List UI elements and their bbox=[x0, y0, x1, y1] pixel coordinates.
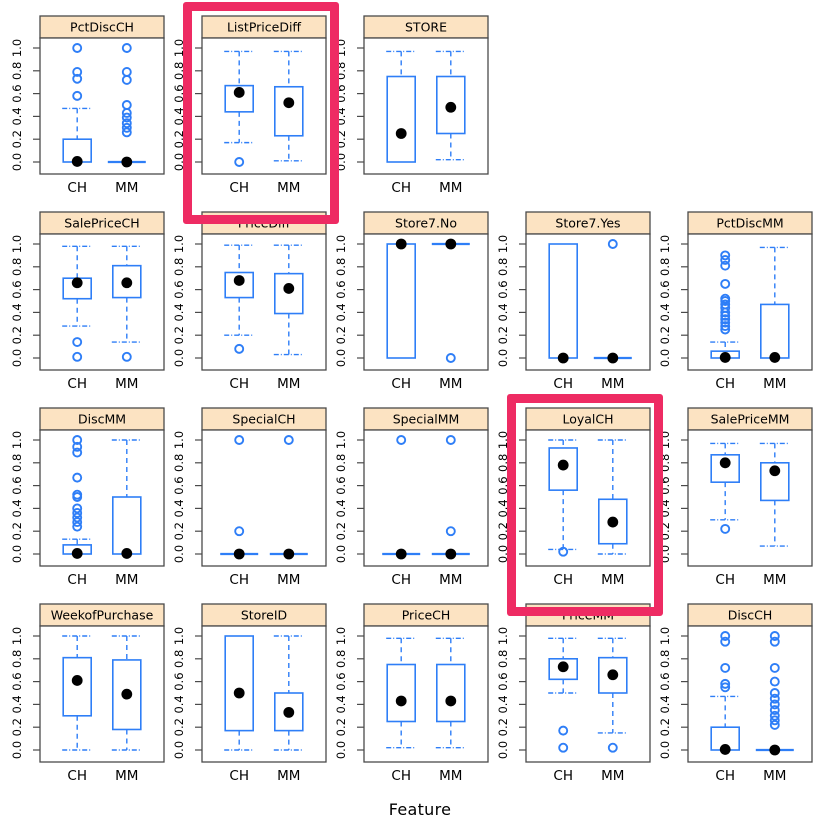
mean-dot bbox=[72, 548, 83, 559]
panel-DiscCH: DiscCH0.00.20.40.60.81.0CHMM bbox=[654, 600, 816, 796]
plot-area bbox=[526, 626, 650, 762]
panel-ListPriceDiff: ListPriceDiff0.00.20.40.60.81.0CHMM bbox=[168, 12, 330, 208]
panel-STORE: STORE0.00.20.40.60.81.0CHMM bbox=[330, 12, 492, 208]
y-tick-label: 0.4 bbox=[10, 107, 24, 125]
y-tick-label: 0.2 bbox=[496, 718, 510, 736]
x-tick-label: MM bbox=[439, 572, 462, 588]
x-tick-label: CH bbox=[715, 572, 735, 588]
y-tick-label: 0.8 bbox=[334, 650, 348, 668]
mean-dot bbox=[234, 549, 245, 560]
y-tick-label: 0.0 bbox=[658, 349, 672, 367]
x-tick-label: CH bbox=[391, 376, 411, 392]
y-tick-label: 0.6 bbox=[496, 280, 510, 298]
x-tick-label: CH bbox=[229, 572, 249, 588]
panel-PriceDiff: PriceDiff0.00.20.40.60.81.0CHMM bbox=[168, 208, 330, 404]
panel-title: ListPriceDiff bbox=[227, 20, 301, 35]
mean-dot bbox=[121, 157, 132, 168]
plot-area bbox=[364, 626, 488, 762]
mean-dot bbox=[445, 549, 456, 560]
x-tick-label: CH bbox=[553, 768, 573, 784]
y-tick-label: 0.8 bbox=[172, 650, 186, 668]
y-tick-label: 0.0 bbox=[172, 741, 186, 759]
y-tick-label: 0.6 bbox=[172, 672, 186, 690]
y-tick-label: 0.0 bbox=[334, 741, 348, 759]
panel-canvas: STORE0.00.20.40.60.81.0CHMM bbox=[330, 12, 492, 208]
y-tick-label: 1.0 bbox=[334, 431, 348, 449]
y-tick-label: 0.4 bbox=[10, 303, 24, 321]
y-tick-label: 0.4 bbox=[172, 107, 186, 125]
x-tick-label: MM bbox=[601, 572, 624, 588]
panel-PriceCH: PriceCH0.00.20.40.60.81.0CHMM bbox=[330, 600, 492, 796]
x-tick-label: CH bbox=[391, 180, 411, 196]
plot-area bbox=[40, 626, 164, 762]
panel-title: DiscCH bbox=[728, 608, 773, 623]
mean-dot bbox=[72, 675, 83, 686]
y-tick-label: 0.6 bbox=[334, 672, 348, 690]
y-tick-label: 0.8 bbox=[658, 650, 672, 668]
panel-WeekofPurchase: WeekofPurchase0.00.20.40.60.81.0CHMM bbox=[6, 600, 168, 796]
panel-Store7.No: Store7.No0.00.20.40.60.81.0CHMM bbox=[330, 208, 492, 404]
y-tick-label: 0.8 bbox=[172, 258, 186, 276]
panel-PctDiscMM: PctDiscMM0.00.20.40.60.81.0CHMM bbox=[654, 208, 816, 404]
y-tick-label: 0.0 bbox=[10, 545, 24, 563]
x-tick-label: CH bbox=[715, 376, 735, 392]
boxplot-figure: PctDiscCH0.00.20.40.60.81.0CHMMListPrice… bbox=[0, 0, 840, 840]
y-tick-label: 0.2 bbox=[172, 326, 186, 344]
y-tick-label: 0.2 bbox=[172, 718, 186, 736]
mean-dot bbox=[396, 696, 407, 707]
y-tick-label: 1.0 bbox=[10, 39, 24, 57]
y-tick-label: 0.6 bbox=[496, 672, 510, 690]
y-tick-label: 1.0 bbox=[10, 235, 24, 253]
panel-canvas: LoyalCH0.00.20.40.60.81.0CHMM bbox=[492, 404, 654, 600]
x-tick-label: CH bbox=[67, 768, 87, 784]
y-tick-label: 0.2 bbox=[658, 326, 672, 344]
x-tick-label: MM bbox=[277, 376, 300, 392]
y-tick-label: 0.8 bbox=[172, 62, 186, 80]
x-tick-label: CH bbox=[391, 572, 411, 588]
x-axis-title: Feature bbox=[0, 800, 840, 819]
plot-area bbox=[688, 430, 812, 566]
y-tick-label: 0.0 bbox=[334, 349, 348, 367]
y-tick-label: 0.6 bbox=[334, 476, 348, 494]
panel-title: PctDiscCH bbox=[70, 20, 134, 35]
panel-title: PriceMM bbox=[562, 608, 614, 623]
y-tick-label: 1.0 bbox=[334, 235, 348, 253]
mean-dot bbox=[396, 549, 407, 560]
mean-dot bbox=[396, 128, 407, 139]
y-tick-label: 0.4 bbox=[10, 695, 24, 713]
x-tick-label: MM bbox=[439, 768, 462, 784]
y-tick-label: 0.4 bbox=[334, 303, 348, 321]
y-tick-label: 0.6 bbox=[10, 84, 24, 102]
y-tick-label: 1.0 bbox=[10, 431, 24, 449]
panel-title: PctDiscMM bbox=[716, 216, 783, 231]
mean-dot bbox=[72, 156, 83, 167]
mean-dot bbox=[121, 548, 132, 559]
panel-title: Store7.Yes bbox=[555, 216, 620, 231]
y-tick-label: 1.0 bbox=[334, 627, 348, 645]
y-tick-label: 0.4 bbox=[658, 303, 672, 321]
plot-area bbox=[364, 234, 488, 370]
plot-area bbox=[364, 430, 488, 566]
plot-area bbox=[364, 38, 488, 174]
panel-title: Store7.No bbox=[395, 216, 457, 231]
mean-dot bbox=[607, 517, 618, 528]
plot-area bbox=[40, 430, 164, 566]
y-tick-label: 0.8 bbox=[496, 454, 510, 472]
y-tick-label: 0.2 bbox=[10, 130, 24, 148]
y-tick-label: 1.0 bbox=[496, 235, 510, 253]
plot-area bbox=[202, 234, 326, 370]
mean-dot bbox=[769, 352, 780, 363]
plot-area bbox=[202, 430, 326, 566]
panel-canvas: SalePriceCH0.00.20.40.60.81.0CHMM bbox=[6, 208, 168, 404]
x-tick-label: MM bbox=[601, 376, 624, 392]
y-tick-label: 0.4 bbox=[172, 499, 186, 517]
panel-canvas: ListPriceDiff0.00.20.40.60.81.0CHMM bbox=[168, 12, 330, 208]
boxplot-grid: PctDiscCH0.00.20.40.60.81.0CHMMListPrice… bbox=[6, 12, 816, 796]
y-tick-label: 0.2 bbox=[10, 718, 24, 736]
y-tick-label: 1.0 bbox=[658, 431, 672, 449]
y-tick-label: 0.2 bbox=[496, 522, 510, 540]
y-tick-label: 0.8 bbox=[172, 454, 186, 472]
y-tick-label: 0.6 bbox=[334, 280, 348, 298]
y-tick-label: 0.2 bbox=[334, 130, 348, 148]
mean-dot bbox=[121, 689, 132, 700]
x-tick-label: MM bbox=[277, 572, 300, 588]
y-tick-label: 0.8 bbox=[10, 650, 24, 668]
y-tick-label: 0.0 bbox=[172, 545, 186, 563]
y-tick-label: 0.6 bbox=[172, 476, 186, 494]
x-tick-label: CH bbox=[553, 572, 573, 588]
y-tick-label: 0.8 bbox=[334, 62, 348, 80]
panel-title: SalePriceMM bbox=[711, 412, 790, 427]
x-tick-label: CH bbox=[229, 376, 249, 392]
y-tick-label: 0.0 bbox=[10, 741, 24, 759]
y-tick-label: 1.0 bbox=[172, 431, 186, 449]
y-tick-label: 0.0 bbox=[496, 349, 510, 367]
panel-title: StoreID bbox=[241, 608, 287, 623]
x-tick-label: MM bbox=[115, 180, 138, 196]
mean-dot bbox=[72, 277, 83, 288]
mean-dot bbox=[445, 696, 456, 707]
mean-dot bbox=[445, 102, 456, 113]
panel-Store7.Yes: Store7.Yes0.00.20.40.60.81.0CHMM bbox=[492, 208, 654, 404]
y-tick-label: 0.8 bbox=[10, 454, 24, 472]
panel-canvas: Store7.No0.00.20.40.60.81.0CHMM bbox=[330, 208, 492, 404]
mean-dot bbox=[558, 353, 569, 364]
y-tick-label: 0.8 bbox=[334, 258, 348, 276]
plot-area bbox=[526, 430, 650, 566]
plot-area bbox=[526, 234, 650, 370]
panel-canvas: WeekofPurchase0.00.20.40.60.81.0CHMM bbox=[6, 600, 168, 796]
panel-canvas: PriceCH0.00.20.40.60.81.0CHMM bbox=[330, 600, 492, 796]
mean-dot bbox=[558, 460, 569, 471]
panel-LoyalCH: LoyalCH0.00.20.40.60.81.0CHMM bbox=[492, 404, 654, 600]
plot-area bbox=[202, 38, 326, 174]
y-tick-label: 0.6 bbox=[10, 476, 24, 494]
panel-canvas: PctDiscMM0.00.20.40.60.81.0CHMM bbox=[654, 208, 816, 404]
panel-canvas: SpecialMM0.00.20.40.60.81.0CHMM bbox=[330, 404, 492, 600]
mean-dot bbox=[396, 239, 407, 250]
plot-area bbox=[40, 38, 164, 174]
mean-dot bbox=[720, 352, 731, 363]
y-tick-label: 0.2 bbox=[496, 326, 510, 344]
plot-area bbox=[688, 234, 812, 370]
y-tick-label: 0.4 bbox=[334, 695, 348, 713]
y-tick-label: 1.0 bbox=[658, 235, 672, 253]
y-tick-label: 0.8 bbox=[658, 454, 672, 472]
panel-title: SpecialMM bbox=[393, 412, 460, 427]
panel-canvas: Store7.Yes0.00.20.40.60.81.0CHMM bbox=[492, 208, 654, 404]
y-tick-label: 0.2 bbox=[658, 522, 672, 540]
y-tick-label: 0.2 bbox=[10, 522, 24, 540]
x-tick-label: MM bbox=[601, 768, 624, 784]
plot-area bbox=[202, 626, 326, 762]
mean-dot bbox=[234, 87, 245, 98]
y-tick-label: 0.6 bbox=[658, 672, 672, 690]
x-tick-label: CH bbox=[553, 376, 573, 392]
y-tick-label: 0.8 bbox=[10, 258, 24, 276]
x-tick-label: CH bbox=[67, 572, 87, 588]
mean-dot bbox=[234, 275, 245, 286]
panel-title: SalePriceCH bbox=[64, 216, 139, 231]
y-tick-label: 0.2 bbox=[172, 130, 186, 148]
y-tick-label: 0.8 bbox=[496, 258, 510, 276]
y-tick-label: 0.0 bbox=[10, 349, 24, 367]
panel-DiscMM: DiscMM0.00.20.40.60.81.0CHMM bbox=[6, 404, 168, 600]
y-tick-label: 0.6 bbox=[10, 280, 24, 298]
panel-canvas: PriceMM0.00.20.40.60.81.0CHMM bbox=[492, 600, 654, 796]
x-tick-label: MM bbox=[277, 768, 300, 784]
y-tick-label: 0.0 bbox=[658, 545, 672, 563]
y-tick-label: 0.6 bbox=[172, 280, 186, 298]
y-tick-label: 0.2 bbox=[172, 522, 186, 540]
panel-title: PriceCH bbox=[402, 608, 451, 623]
y-tick-label: 0.2 bbox=[334, 326, 348, 344]
y-tick-label: 0.4 bbox=[172, 303, 186, 321]
y-tick-label: 0.4 bbox=[496, 303, 510, 321]
plot-area bbox=[40, 234, 164, 370]
y-tick-label: 0.8 bbox=[334, 454, 348, 472]
x-tick-label: CH bbox=[391, 768, 411, 784]
y-tick-label: 0.0 bbox=[10, 153, 24, 171]
panel-SalePriceCH: SalePriceCH0.00.20.40.60.81.0CHMM bbox=[6, 208, 168, 404]
mean-dot bbox=[720, 744, 731, 755]
y-tick-label: 1.0 bbox=[172, 627, 186, 645]
x-tick-label: MM bbox=[115, 768, 138, 784]
mean-dot bbox=[283, 97, 294, 108]
y-tick-label: 0.8 bbox=[496, 650, 510, 668]
y-tick-label: 0.0 bbox=[496, 741, 510, 759]
y-tick-label: 0.8 bbox=[10, 62, 24, 80]
y-tick-label: 0.0 bbox=[172, 153, 186, 171]
panel-title: WeekofPurchase bbox=[51, 608, 154, 623]
panel-PctDiscCH: PctDiscCH0.00.20.40.60.81.0CHMM bbox=[6, 12, 168, 208]
y-tick-label: 0.6 bbox=[10, 672, 24, 690]
x-tick-label: MM bbox=[439, 376, 462, 392]
mean-dot bbox=[445, 239, 456, 250]
panel-SpecialMM: SpecialMM0.00.20.40.60.81.0CHMM bbox=[330, 404, 492, 600]
panel-canvas: PctDiscCH0.00.20.40.60.81.0CHMM bbox=[6, 12, 168, 208]
y-tick-label: 0.6 bbox=[334, 84, 348, 102]
y-tick-label: 0.4 bbox=[334, 499, 348, 517]
panel-SalePriceMM: SalePriceMM0.00.20.40.60.81.0CHMM bbox=[654, 404, 816, 600]
y-tick-label: 0.4 bbox=[658, 695, 672, 713]
panel-PriceMM: PriceMM0.00.20.40.60.81.0CHMM bbox=[492, 600, 654, 796]
x-tick-label: MM bbox=[439, 180, 462, 196]
panel-title: SpecialCH bbox=[232, 412, 295, 427]
y-tick-label: 0.2 bbox=[10, 326, 24, 344]
y-tick-label: 0.4 bbox=[172, 695, 186, 713]
y-tick-label: 0.0 bbox=[334, 545, 348, 563]
panel-canvas: SpecialCH0.00.20.40.60.81.0CHMM bbox=[168, 404, 330, 600]
panel-title: PriceDiff bbox=[238, 216, 291, 231]
y-tick-label: 1.0 bbox=[172, 235, 186, 253]
panel-SpecialCH: SpecialCH0.00.20.40.60.81.0CHMM bbox=[168, 404, 330, 600]
y-tick-label: 0.0 bbox=[658, 741, 672, 759]
y-tick-label: 0.6 bbox=[172, 84, 186, 102]
y-tick-label: 0.2 bbox=[334, 522, 348, 540]
mean-dot bbox=[283, 283, 294, 294]
x-tick-label: CH bbox=[67, 180, 87, 196]
x-tick-label: CH bbox=[229, 768, 249, 784]
y-tick-label: 1.0 bbox=[334, 39, 348, 57]
y-tick-label: 0.6 bbox=[658, 476, 672, 494]
plot-area bbox=[688, 626, 812, 762]
panel-canvas: PriceDiff0.00.20.40.60.81.0CHMM bbox=[168, 208, 330, 404]
panel-title: DiscMM bbox=[78, 412, 126, 427]
y-tick-label: 1.0 bbox=[658, 627, 672, 645]
mean-dot bbox=[234, 688, 245, 699]
y-tick-label: 1.0 bbox=[496, 627, 510, 645]
mean-dot bbox=[607, 353, 618, 364]
mean-dot bbox=[607, 669, 618, 680]
panel-StoreID: StoreID0.00.20.40.60.81.0CHMM bbox=[168, 600, 330, 796]
x-tick-label: MM bbox=[763, 768, 786, 784]
x-tick-label: MM bbox=[277, 180, 300, 196]
mean-dot bbox=[283, 707, 294, 718]
panel-canvas: DiscMM0.00.20.40.60.81.0CHMM bbox=[6, 404, 168, 600]
y-tick-label: 1.0 bbox=[172, 39, 186, 57]
mean-dot bbox=[121, 277, 132, 288]
y-tick-label: 0.0 bbox=[334, 153, 348, 171]
y-tick-label: 0.4 bbox=[496, 499, 510, 517]
y-tick-label: 0.0 bbox=[496, 545, 510, 563]
y-tick-label: 0.4 bbox=[10, 499, 24, 517]
y-tick-label: 0.6 bbox=[496, 476, 510, 494]
y-tick-label: 0.2 bbox=[334, 718, 348, 736]
panel-canvas: DiscCH0.00.20.40.60.81.0CHMM bbox=[654, 600, 816, 796]
x-tick-label: MM bbox=[763, 572, 786, 588]
x-tick-label: MM bbox=[763, 376, 786, 392]
y-tick-label: 0.8 bbox=[658, 258, 672, 276]
panel-canvas: SalePriceMM0.00.20.40.60.81.0CHMM bbox=[654, 404, 816, 600]
y-tick-label: 0.4 bbox=[334, 107, 348, 125]
y-tick-label: 0.4 bbox=[658, 499, 672, 517]
mean-dot bbox=[769, 465, 780, 476]
mean-dot bbox=[558, 661, 569, 672]
x-tick-label: MM bbox=[115, 572, 138, 588]
panel-title: LoyalCH bbox=[562, 412, 613, 427]
y-tick-label: 0.2 bbox=[658, 718, 672, 736]
y-tick-label: 0.6 bbox=[658, 280, 672, 298]
panel-canvas: StoreID0.00.20.40.60.81.0CHMM bbox=[168, 600, 330, 796]
y-tick-label: 0.4 bbox=[496, 695, 510, 713]
panel-title: STORE bbox=[405, 20, 447, 35]
x-tick-label: CH bbox=[715, 768, 735, 784]
y-tick-label: 1.0 bbox=[496, 431, 510, 449]
x-tick-label: CH bbox=[67, 376, 87, 392]
mean-dot bbox=[720, 457, 731, 468]
mean-dot bbox=[769, 745, 780, 756]
y-tick-label: 1.0 bbox=[10, 627, 24, 645]
x-tick-label: CH bbox=[229, 180, 249, 196]
x-tick-label: MM bbox=[115, 376, 138, 392]
y-tick-label: 0.0 bbox=[172, 349, 186, 367]
mean-dot bbox=[283, 549, 294, 560]
